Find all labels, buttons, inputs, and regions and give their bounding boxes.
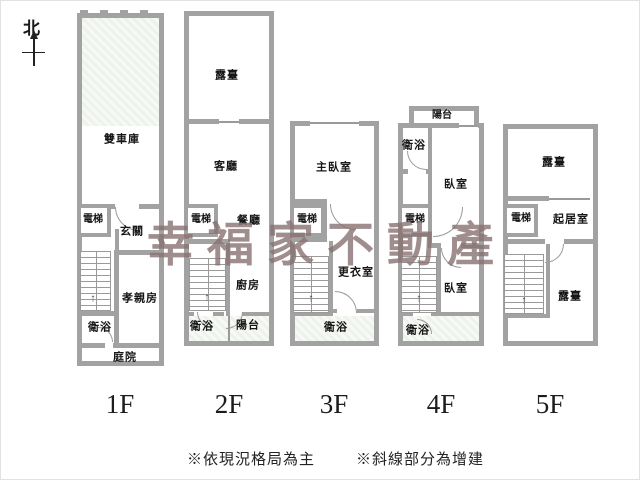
vent-tick <box>120 10 128 13</box>
wall <box>503 196 549 201</box>
wall <box>184 119 219 124</box>
wall <box>564 239 598 244</box>
vent-tick <box>80 10 88 13</box>
room-label-bathroom-3f: 衛浴 <box>324 323 348 334</box>
wall <box>503 314 550 318</box>
room-label-parents-room: 孝親房 <box>122 294 158 305</box>
addition-area-1f <box>82 18 159 126</box>
floor-caption-3f: 3F <box>320 391 349 418</box>
stairs-up-arrow: ↑ <box>416 294 422 305</box>
room-label-kitchen: 廚房 <box>236 281 260 292</box>
room-label-garage: 雙車庫 <box>104 135 140 146</box>
room-label-elevator-1f: 電梯 <box>83 215 103 225</box>
room-label-balcony-4f: 陽台 <box>432 111 452 121</box>
room-label-bathroom-1f: 衛浴 <box>88 323 112 334</box>
room-label-elevator-5f: 電梯 <box>511 214 531 224</box>
room-label-terrace-2f: 露臺 <box>215 71 239 82</box>
wall <box>290 121 310 126</box>
wall <box>77 343 105 348</box>
stairs-up-arrow: ↑ <box>521 296 527 307</box>
wall <box>77 311 119 316</box>
room-label-living-room: 客廳 <box>214 162 238 173</box>
room-label-bathroom-4f-lower: 衛浴 <box>406 326 430 337</box>
window-line <box>310 122 359 124</box>
stairs-up-arrow: ↑ <box>204 293 210 304</box>
floorplan-image: 北 ↑ 雙車庫 電梯 玄關 孝親房 衛浴 庭院 ↑ 露臺 客廳 電梯 餐廳 廚房… <box>0 0 640 480</box>
wall <box>478 123 484 128</box>
wall <box>546 244 550 318</box>
room-label-sitting-room: 起居室 <box>553 215 589 226</box>
room-label-master-bedroom: 主臥室 <box>316 163 352 174</box>
room-label-bedroom-4f-upper: 臥室 <box>444 180 468 191</box>
wall <box>503 239 545 244</box>
floor-caption-1f: 1F <box>106 391 135 418</box>
room-label-bathroom-4f-upper: 衛浴 <box>402 141 426 152</box>
north-arrow-crossbar <box>22 52 45 53</box>
room-label-bathroom-2f: 衛浴 <box>190 322 214 333</box>
sliding-door-line <box>219 121 239 123</box>
room-label-terrace-5f-lower: 露臺 <box>558 292 582 303</box>
wall <box>114 250 119 343</box>
room-label-balcony-2f: 陽台 <box>236 321 260 332</box>
sliding-door-line <box>459 125 478 127</box>
room-label-courtyard: 庭院 <box>113 353 137 364</box>
stairs-up-arrow: ↑ <box>308 294 314 305</box>
wall <box>357 309 379 313</box>
wall <box>239 119 274 124</box>
vent-tick <box>100 10 108 13</box>
stairs-up-arrow: ↑ <box>90 294 96 305</box>
floor-caption-4f: 4F <box>427 391 456 418</box>
footnote-addition: ※斜線部分為增建 <box>356 448 484 469</box>
wall <box>428 128 432 169</box>
floor-caption-5f: 5F <box>536 391 565 418</box>
footnote-current-layout: ※依現況格局為主 <box>187 448 315 469</box>
agency-watermark: 幸福家不動產 <box>147 221 507 268</box>
wall <box>359 121 379 126</box>
wall <box>113 343 164 348</box>
wall <box>398 169 408 174</box>
sliding-door-line <box>549 198 590 200</box>
room-label-bedroom-4f-lower: 臥室 <box>444 284 468 295</box>
room-label-foyer: 玄關 <box>120 227 144 238</box>
vent-tick <box>140 10 148 13</box>
floor-caption-2f: 2F <box>215 391 244 418</box>
wall <box>428 169 432 205</box>
wall <box>139 204 164 209</box>
room-label-terrace-5f-upper: 露臺 <box>542 158 566 169</box>
